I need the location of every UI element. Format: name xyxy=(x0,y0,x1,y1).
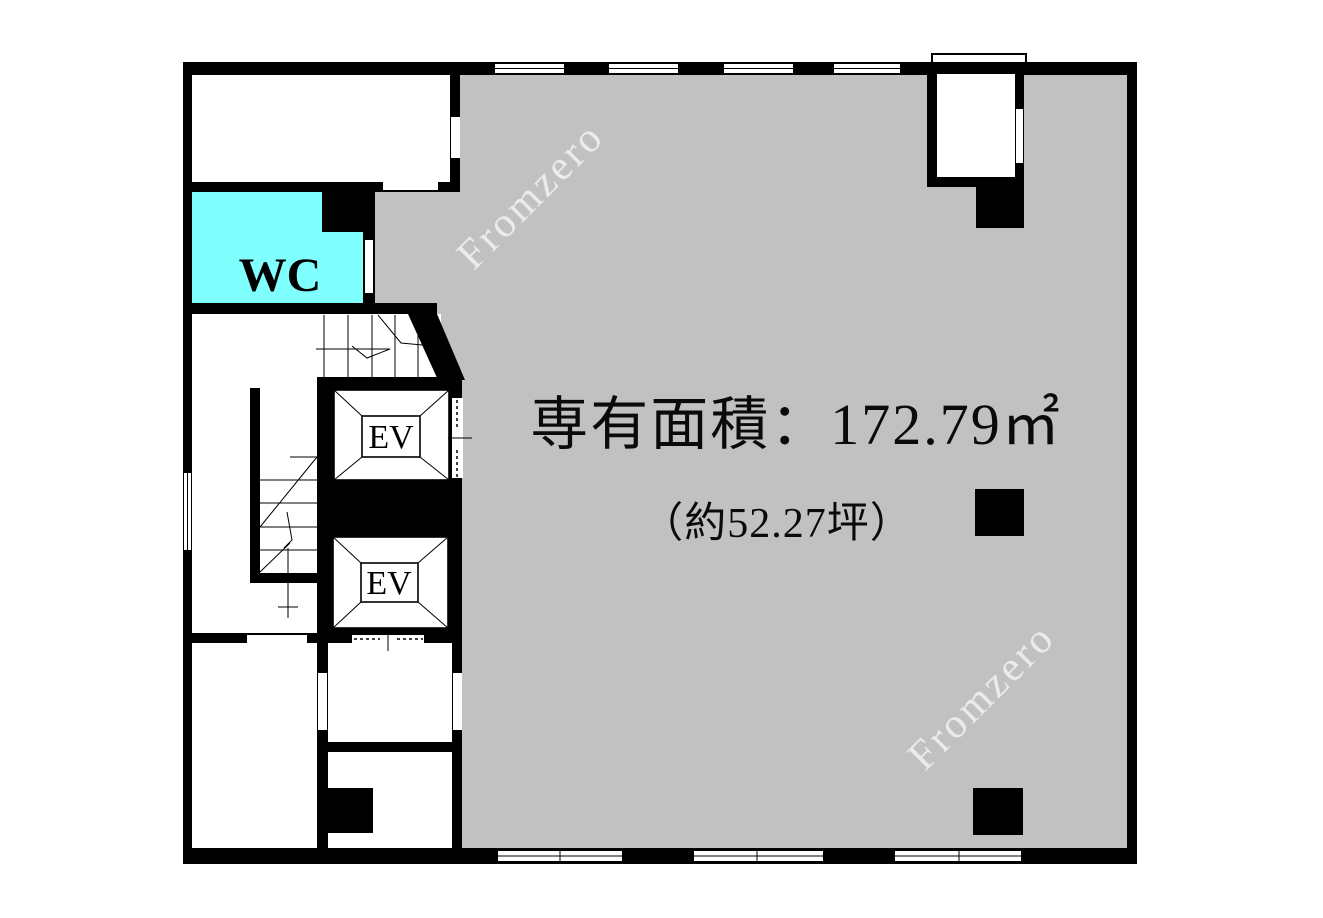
slot-middle-room xyxy=(453,673,462,730)
room-top-left xyxy=(192,75,450,182)
elevator-2-label: EV xyxy=(366,565,412,602)
floor-plan: EV EV xyxy=(0,0,1323,918)
pillar-top-right xyxy=(976,185,1024,228)
duct-shaft-door xyxy=(1016,109,1023,163)
wall-below-wc xyxy=(183,303,437,314)
door-room1-bottom xyxy=(383,182,438,190)
wall-wc-notch xyxy=(322,190,375,232)
elevator-2: EV xyxy=(333,537,448,628)
area-label: 専有面積：172.79㎡ xyxy=(530,392,1062,457)
window-bottom-2 xyxy=(694,851,823,861)
room-middle xyxy=(328,643,452,742)
door-wc xyxy=(365,240,373,293)
window-top-2 xyxy=(609,64,678,73)
pillar-bottom-right xyxy=(973,788,1023,835)
duct-shaft-interior xyxy=(937,74,1015,177)
window-top-4 xyxy=(834,64,900,73)
window-top-1 xyxy=(495,64,564,73)
floor-plan-page: EV EV xyxy=(0,0,1323,918)
elevator-1-label: EV xyxy=(368,419,414,456)
door-hall xyxy=(247,635,307,643)
room-bottom-left xyxy=(192,643,317,848)
slot-left-rooms xyxy=(318,673,327,730)
wall-stairwell-bottom xyxy=(250,573,317,583)
wall-stairwell-left xyxy=(250,388,260,573)
door-room1-side xyxy=(451,117,460,158)
window-top-3 xyxy=(724,64,793,73)
elevator-1: EV xyxy=(334,390,449,480)
area-detail-label: （約52.27坪） xyxy=(641,501,913,547)
window-bottom-3 xyxy=(895,851,1021,861)
pillar-middle-right xyxy=(975,489,1024,536)
wc-label: WC xyxy=(239,249,322,302)
wall-midroom-divider xyxy=(328,742,462,752)
window-bottom-1 xyxy=(498,851,622,861)
pillar-bottom-room xyxy=(328,788,373,833)
window-left xyxy=(184,473,191,550)
